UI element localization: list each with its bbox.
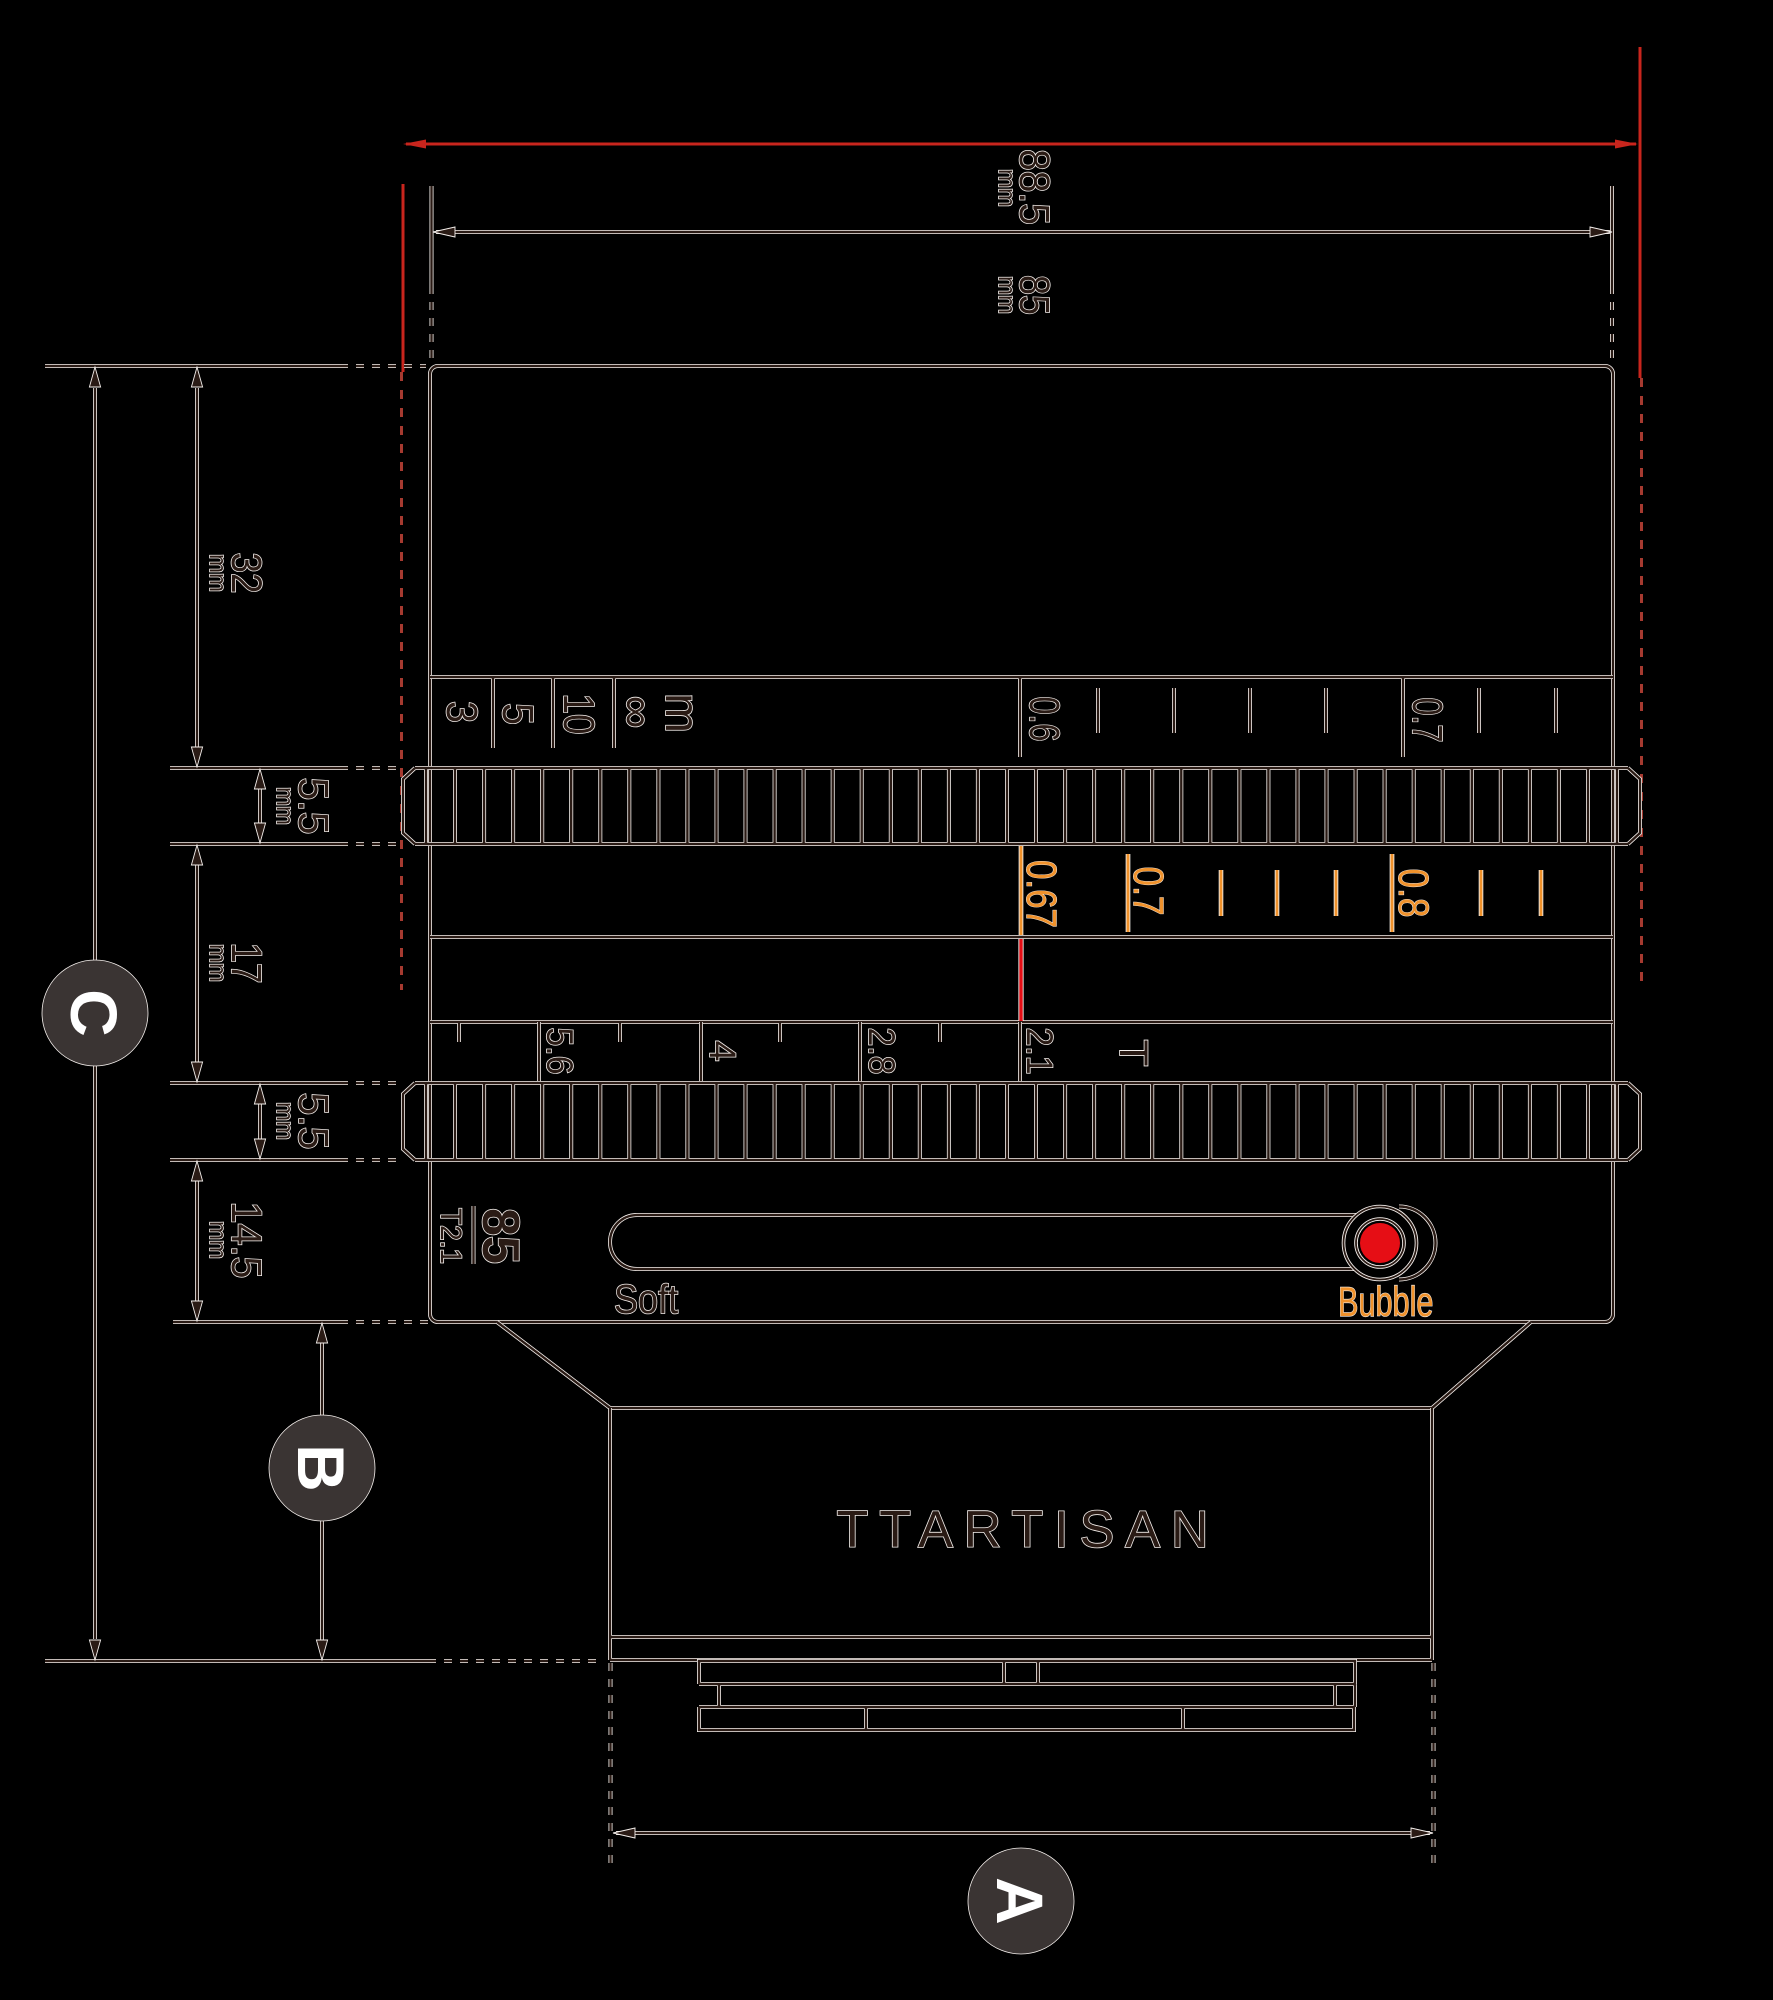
svg-text:Bubble: Bubble bbox=[1338, 1278, 1433, 1325]
svg-text:mm: mm bbox=[271, 787, 298, 825]
svg-text:0.7: 0.7 bbox=[1403, 698, 1451, 743]
svg-text:mm: mm bbox=[993, 169, 1020, 207]
svg-text:2.8: 2.8 bbox=[861, 1028, 902, 1075]
svg-text:A: A bbox=[983, 1877, 1057, 1925]
svg-text:mm: mm bbox=[204, 944, 231, 982]
svg-text:mm: mm bbox=[993, 276, 1020, 314]
svg-text:C: C bbox=[57, 989, 131, 1037]
svg-text:5.6: 5.6 bbox=[539, 1028, 580, 1075]
svg-text:10: 10 bbox=[554, 694, 603, 735]
svg-text:0.8: 0.8 bbox=[1389, 869, 1437, 918]
svg-text:T2.1: T2.1 bbox=[434, 1208, 467, 1264]
svg-text:B: B bbox=[284, 1444, 358, 1492]
svg-text:TTARTISAN: TTARTISAN bbox=[836, 1501, 1219, 1559]
svg-text:T: T bbox=[1111, 1040, 1155, 1067]
svg-text:0.6: 0.6 bbox=[1020, 697, 1068, 742]
svg-text:mm: mm bbox=[204, 554, 231, 592]
svg-text:5: 5 bbox=[493, 703, 542, 725]
svg-text:4: 4 bbox=[702, 1041, 743, 1062]
svg-text:3: 3 bbox=[437, 701, 486, 723]
svg-text:2.1: 2.1 bbox=[1019, 1028, 1060, 1075]
svg-text:0.67: 0.67 bbox=[1017, 860, 1065, 928]
svg-text:85: 85 bbox=[471, 1208, 529, 1264]
svg-text:Soft: Soft bbox=[614, 1277, 678, 1323]
svg-text:0.7: 0.7 bbox=[1124, 867, 1172, 916]
svg-text:mm: mm bbox=[204, 1221, 231, 1259]
svg-text:mm: mm bbox=[271, 1102, 298, 1140]
svg-text:m: m bbox=[655, 693, 708, 733]
